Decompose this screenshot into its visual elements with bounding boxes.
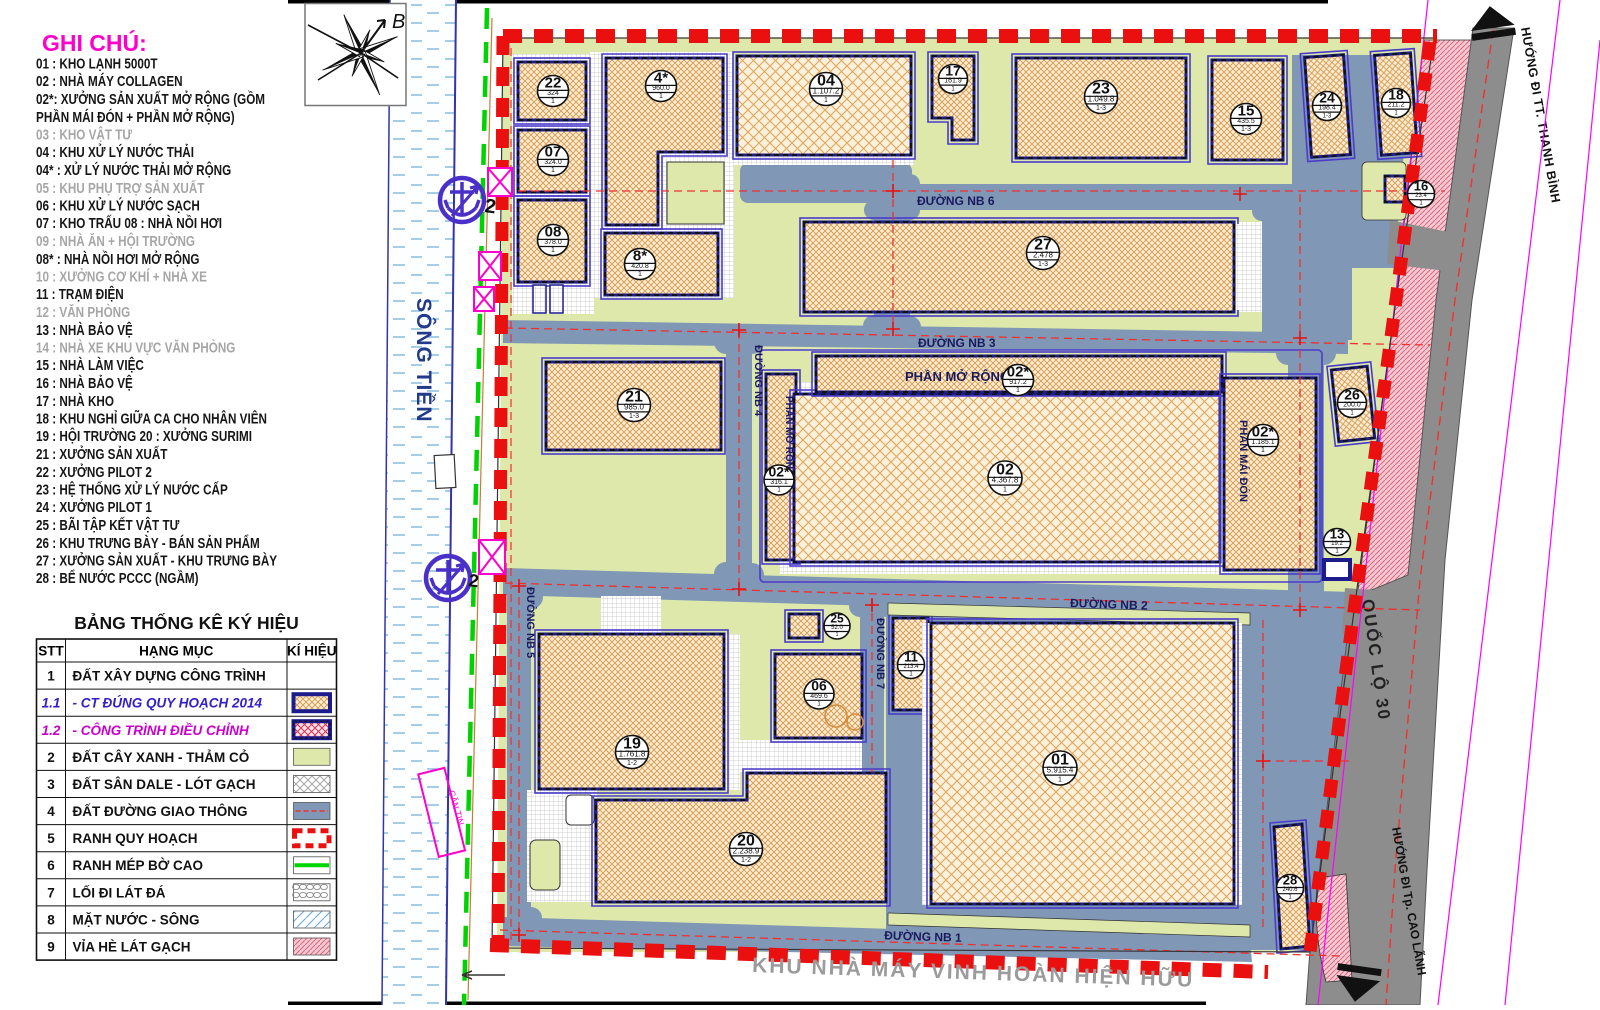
svg-text:18: 18 xyxy=(1388,86,1404,102)
svg-text:1.185.1: 1.185.1 xyxy=(1251,439,1274,446)
svg-text:420.8: 420.8 xyxy=(631,263,649,270)
svg-text:316.1: 316.1 xyxy=(770,479,788,486)
svg-text:2.238.9: 2.238.9 xyxy=(733,846,760,855)
svg-text:15: 15 xyxy=(1238,102,1255,119)
svg-text:11 : TRẠM ĐIỆN: 11 : TRẠM ĐIỆN xyxy=(36,286,124,303)
svg-text:1-3: 1-3 xyxy=(629,413,639,420)
svg-text:09 : NHÀ ĂN + HỘI TRƯỜNG: 09 : NHÀ ĂN + HỘI TRƯỜNG xyxy=(36,233,195,250)
svg-text:1: 1 xyxy=(551,247,555,254)
svg-text:ĐƯỜNG NB 4: ĐƯỜNG NB 4 xyxy=(752,345,765,417)
svg-text:02*: 02* xyxy=(768,463,790,479)
svg-text:24 : XƯỞNG PILOT 1: 24 : XƯỞNG PILOT 1 xyxy=(36,499,152,516)
svg-text:1: 1 xyxy=(1058,776,1062,783)
svg-text:ĐƯỜNG NB 1: ĐƯỜNG NB 1 xyxy=(884,927,962,944)
svg-text:324: 324 xyxy=(547,90,559,97)
svg-text:52.0: 52.0 xyxy=(831,625,843,631)
svg-text:1-3: 1-3 xyxy=(1038,261,1048,268)
svg-text:12 : VĂN PHÒNG: 12 : VĂN PHÒNG xyxy=(36,304,130,321)
svg-text:RANH QUY HOẠCH: RANH QUY HOẠCH xyxy=(73,831,198,846)
svg-text:9: 9 xyxy=(47,940,55,955)
svg-text:917.2: 917.2 xyxy=(1009,379,1027,386)
svg-text:07: 07 xyxy=(545,143,562,160)
svg-text:985.0: 985.0 xyxy=(624,402,645,411)
svg-text:1-2: 1-2 xyxy=(741,857,751,864)
svg-text:10 : XƯỞNG CƠ KHÍ + NHÀ XE: 10 : XƯỞNG CƠ KHÍ + NHÀ XE xyxy=(36,268,207,285)
svg-text:211.2: 211.2 xyxy=(1388,102,1405,109)
svg-text:05 : KHU PHỤ TRỢ SẢN XUẤT: 05 : KHU PHỤ TRỢ SẢN XUẤT xyxy=(36,179,205,196)
svg-text:16 : NHÀ BẢO VỆ: 16 : NHÀ BẢO VỆ xyxy=(36,375,133,392)
svg-text:22 : XƯỞNG PILOT 2: 22 : XƯỞNG PILOT 2 xyxy=(36,463,152,480)
svg-text:ĐẤT XÂY DỰNG CÔNG TRÌNH: ĐẤT XÂY DỰNG CÔNG TRÌNH xyxy=(73,669,266,684)
svg-text:5.915.4: 5.915.4 xyxy=(1047,766,1074,775)
svg-text:1: 1 xyxy=(47,669,55,684)
svg-text:STT: STT xyxy=(38,644,64,659)
svg-text:1: 1 xyxy=(551,167,555,174)
svg-text:PHẦN MÁI ĐÓN + PHẦN MỞ RỘNG): PHẦN MÁI ĐÓN + PHẦN MỞ RỘNG) xyxy=(36,108,235,125)
svg-text:1.049.8: 1.049.8 xyxy=(1088,94,1115,103)
svg-text:06: 06 xyxy=(811,677,827,693)
svg-text:1: 1 xyxy=(824,97,828,104)
svg-text:1.2: 1.2 xyxy=(42,723,61,738)
svg-text:B: B xyxy=(392,11,405,33)
svg-text:469.6: 469.6 xyxy=(810,693,828,700)
svg-text:03 : KHO VẬT TƯ: 03 : KHO VẬT TƯ xyxy=(36,126,133,143)
svg-text:1: 1 xyxy=(638,271,642,278)
svg-text:1: 1 xyxy=(551,98,555,105)
svg-text:RANH MÉP BỜ CAO: RANH MÉP BỜ CAO xyxy=(73,858,204,873)
svg-text:02*: XƯỞNG SẢN XUẤT MỞ RỘNG (G: 02*: XƯỞNG SẢN XUẤT MỞ RỘNG (GỒM xyxy=(36,91,265,108)
svg-text:1: 1 xyxy=(836,632,839,638)
svg-text:1: 1 xyxy=(659,93,663,100)
svg-text:378.0: 378.0 xyxy=(544,239,562,246)
svg-text:28 : BỂ NƯỚC PCCC (NGẦM): 28 : BỂ NƯỚC PCCC (NGẦM) xyxy=(36,570,199,587)
svg-text:213.4: 213.4 xyxy=(903,664,919,670)
svg-text:02 : NHÀ MÁY COLLAGEN: 02 : NHÀ MÁY COLLAGEN xyxy=(36,73,183,90)
svg-text:11: 11 xyxy=(904,649,918,664)
svg-text:1.107.2: 1.107.2 xyxy=(813,86,840,95)
svg-text:PHẦN MỞ RỘNG: PHẦN MỞ RỘNG xyxy=(905,369,1010,384)
svg-text:MẶT NƯỚC - SÔNG: MẶT NƯỚC - SÔNG xyxy=(73,913,200,928)
svg-text:04* : XỬ LÝ NƯỚC THẢI MỞ RỘNG: 04* : XỬ LÝ NƯỚC THẢI MỞ RỘNG xyxy=(36,162,231,179)
svg-text:240.6: 240.6 xyxy=(1282,887,1298,893)
svg-text:1: 1 xyxy=(1261,447,1265,454)
svg-text:4: 4 xyxy=(47,804,55,819)
svg-text:1.761.8: 1.761.8 xyxy=(619,749,646,758)
svg-text:27 : XƯỞNG SẢN XUẤT - KHU TRƯN: 27 : XƯỞNG SẢN XUẤT - KHU TRƯNG BÀY xyxy=(36,552,277,569)
svg-text:19 : HỘI TRƯỜNG 20 : XƯỞNG SUR: 19 : HỘI TRƯỜNG 20 : XƯỞNG SURIMI xyxy=(36,428,252,445)
svg-text:ĐƯỜNG NB 2: ĐƯỜNG NB 2 xyxy=(1070,595,1148,613)
svg-text:1: 1 xyxy=(1003,486,1007,493)
svg-text:1-3: 1-3 xyxy=(1323,113,1332,119)
svg-text:KÍ HIỆU: KÍ HIỆU xyxy=(287,644,337,659)
svg-text:02*: 02* xyxy=(1007,363,1030,380)
svg-text:ĐẤT ĐƯỜNG GIAO THÔNG: ĐẤT ĐƯỜNG GIAO THÔNG xyxy=(73,804,248,819)
svg-text:07 : KHO TRẤU 08 : NHÀ NỒI HƠI: 07 : KHO TRẤU 08 : NHÀ NỒI HƠI xyxy=(36,215,222,232)
svg-text:17 : NHÀ KHO: 17 : NHÀ KHO xyxy=(36,392,114,409)
svg-text:1: 1 xyxy=(1016,387,1020,394)
svg-text:- CÔNG TRÌNH ĐIỀU CHỈNH: - CÔNG TRÌNH ĐIỀU CHỈNH xyxy=(73,723,249,738)
svg-text:26 : KHU TRƯNG BÀY - BÁN SẢN P: 26 : KHU TRƯNG BÀY - BÁN SẢN PHẨM xyxy=(36,534,260,551)
svg-text:VỈA HÈ LÁT GẠCH: VỈA HÈ LÁT GẠCH xyxy=(73,940,191,955)
svg-text:01 : KHO LẠNH 5000T: 01 : KHO LẠNH 5000T xyxy=(36,55,158,72)
svg-text:ĐẤT CÂY XANH - THẢM CỎ: ĐẤT CÂY XANH - THẢM CỎ xyxy=(73,750,250,765)
svg-text:22: 22 xyxy=(545,74,562,91)
svg-text:960.0: 960.0 xyxy=(652,85,670,92)
svg-text:21 : XƯỞNG SẢN XUẤT: 21 : XƯỞNG SẢN XUẤT xyxy=(36,446,168,463)
svg-text:ĐƯỜNG NB 5: ĐƯỜNG NB 5 xyxy=(524,587,537,658)
svg-text:LỐI ĐI LÁT ĐÁ: LỐI ĐI LÁT ĐÁ xyxy=(73,885,166,900)
svg-text:200.0: 200.0 xyxy=(1343,402,1361,409)
svg-text:5: 5 xyxy=(47,831,55,846)
svg-text:1-3: 1-3 xyxy=(1241,126,1251,133)
svg-text:- CT ĐÚNG QUY HOẠCH 2014: - CT ĐÚNG QUY HOẠCH 2014 xyxy=(73,696,263,711)
svg-text:06 : KHU XỬ LÝ NƯỚC SẠCH: 06 : KHU XỬ LÝ NƯỚC SẠCH xyxy=(36,197,200,214)
svg-text:1.1: 1.1 xyxy=(42,696,61,711)
svg-text:ĐƯỜNG NB 7: ĐƯỜNG NB 7 xyxy=(874,618,887,689)
svg-text:8*: 8* xyxy=(633,247,647,264)
svg-text:HẠNG MỤC: HẠNG MỤC xyxy=(139,644,213,659)
svg-text:198.4: 198.4 xyxy=(1318,105,1336,112)
svg-text:02*: 02* xyxy=(1252,423,1275,440)
svg-text:ĐƯỜNG NB 6: ĐƯỜNG NB 6 xyxy=(917,193,995,208)
svg-text:435.5: 435.5 xyxy=(1237,118,1255,125)
svg-text:25: 25 xyxy=(830,611,844,625)
svg-text:324.0: 324.0 xyxy=(544,159,562,166)
svg-text:4.367.8: 4.367.8 xyxy=(992,476,1019,485)
svg-text:28: 28 xyxy=(1283,872,1297,887)
svg-text:25 : BÃI TẬP KẾT VẬT TƯ: 25 : BÃI TẬP KẾT VẬT TƯ xyxy=(36,517,180,534)
svg-text:1-2: 1-2 xyxy=(627,760,637,767)
svg-text:ĐẤT SÂN DALE - LÓT GẠCH: ĐẤT SÂN DALE - LÓT GẠCH xyxy=(73,777,256,792)
svg-text:24: 24 xyxy=(1319,89,1335,105)
svg-text:14 : NHÀ XE KHU VỰC VĂN PHÒNG: 14 : NHÀ XE KHU VỰC VĂN PHÒNG xyxy=(36,339,235,356)
svg-text:08* : NHÀ NỒI HƠI MỞ RỘNG: 08* : NHÀ NỒI HƠI MỞ RỘNG xyxy=(36,250,199,267)
svg-text:161.9: 161.9 xyxy=(944,78,962,85)
svg-text:2.478: 2.478 xyxy=(1033,250,1054,259)
svg-text:8: 8 xyxy=(47,913,55,928)
svg-text:ĐƯỜNG NB 3: ĐƯỜNG NB 3 xyxy=(918,335,996,350)
svg-text:7: 7 xyxy=(47,885,55,900)
svg-text:PHẦN MÁI ĐÓN: PHẦN MÁI ĐÓN xyxy=(1237,420,1250,502)
svg-text:4*: 4* xyxy=(654,69,668,86)
svg-text:13: 13 xyxy=(1330,526,1344,541)
svg-text:GHI CHÚ:: GHI CHÚ: xyxy=(42,29,147,56)
svg-text:17: 17 xyxy=(945,62,961,78)
svg-text:BẢNG THỐNG KÊ KÝ HIỆU: BẢNG THỐNG KÊ KÝ HIỆU xyxy=(74,612,299,633)
svg-text:1-3: 1-3 xyxy=(1096,105,1106,112)
svg-text:2: 2 xyxy=(47,750,55,765)
svg-text:18 : KHU NGHỈ GIỮA CA CHO NHÂN: 18 : KHU NGHỈ GIỮA CA CHO NHÂN VIÊN xyxy=(36,410,267,427)
svg-text:6: 6 xyxy=(47,858,55,873)
svg-text:04 : KHU XỬ LÝ NƯỚC THẢI: 04 : KHU XỬ LÝ NƯỚC THẢI xyxy=(36,144,194,161)
svg-text:23 : HỆ THỐNG XỬ LÝ NƯỚC CẤP: 23 : HỆ THỐNG XỬ LÝ NƯỚC CẤP xyxy=(36,481,228,498)
svg-text:23.4: 23.4 xyxy=(1415,193,1427,199)
svg-text:15 : NHÀ LÀM VIỆC: 15 : NHÀ LÀM VIỆC xyxy=(36,357,144,374)
svg-text:08: 08 xyxy=(545,223,562,240)
svg-text:26: 26 xyxy=(1344,386,1360,402)
svg-text:13 : NHÀ BẢO VỆ: 13 : NHÀ BẢO VỆ xyxy=(36,321,133,338)
svg-text:19.2: 19.2 xyxy=(1331,541,1343,547)
svg-text:3: 3 xyxy=(47,777,55,792)
svg-text:16: 16 xyxy=(1414,178,1428,193)
svg-text:SÔNG TIỀN: SÔNG TIỀN xyxy=(412,298,436,423)
